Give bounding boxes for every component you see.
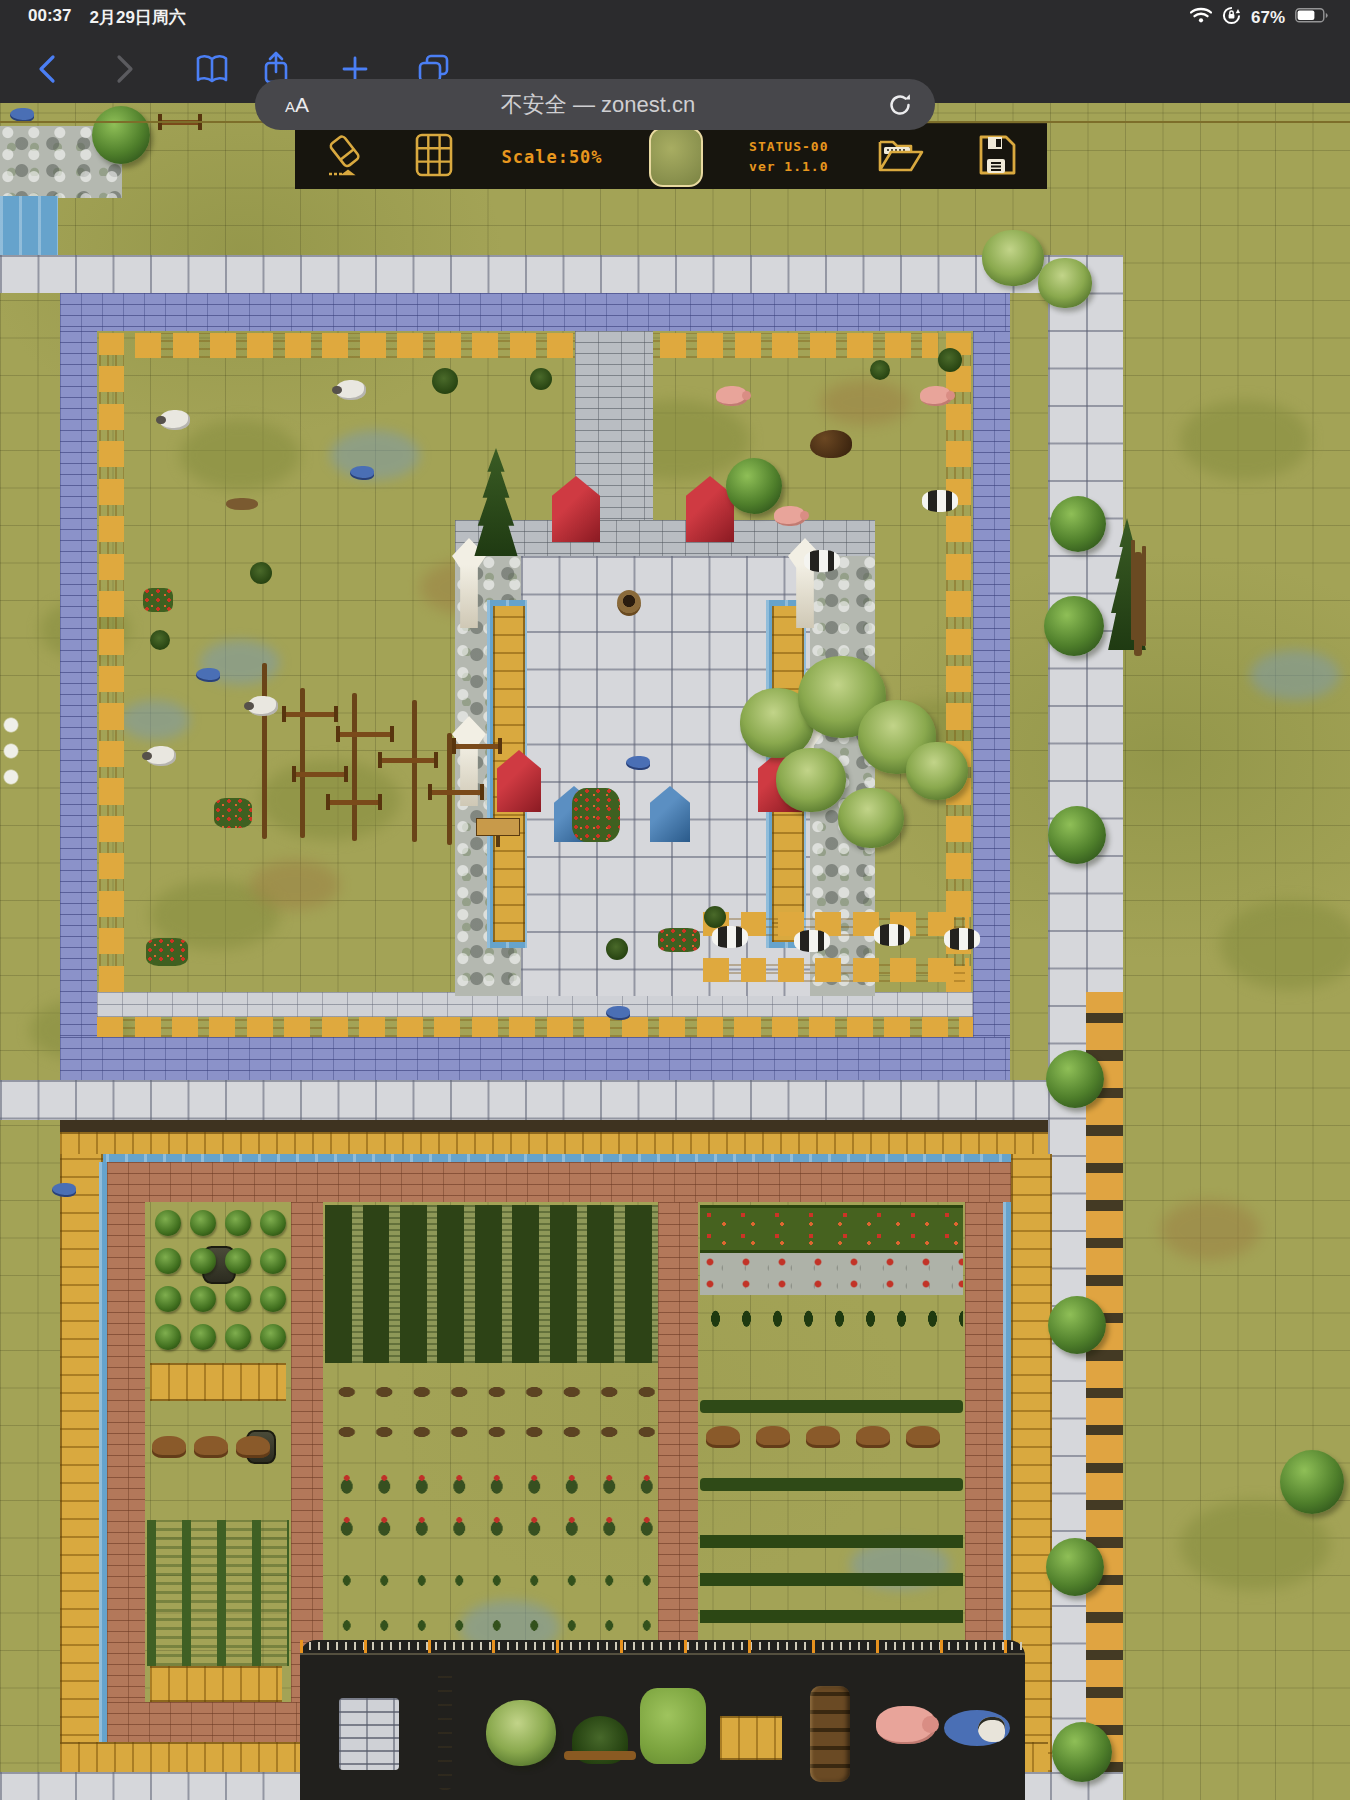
blue-bird	[196, 668, 220, 682]
shrub	[704, 906, 726, 928]
eraser-icon[interactable]	[323, 131, 367, 182]
training-pole	[412, 700, 417, 842]
orchard-tree	[190, 1324, 216, 1350]
well	[617, 590, 641, 616]
cow	[874, 924, 910, 946]
wall-top	[60, 293, 1010, 331]
hemp-field	[325, 1205, 658, 1363]
bison	[810, 430, 852, 458]
tree	[1044, 596, 1104, 656]
compost-rows	[328, 1372, 655, 1450]
dirt-patch	[250, 860, 340, 910]
battery-icon	[1295, 8, 1328, 28]
ferret	[226, 498, 258, 510]
grid-icon[interactable]	[413, 131, 455, 182]
jump-fence	[282, 712, 338, 717]
status-bar: 00:37 2月29日周六 67%	[0, 0, 1350, 35]
shrub	[606, 938, 628, 960]
bare-tree	[1134, 552, 1142, 656]
jump-fence	[326, 800, 382, 805]
clock: 00:37	[28, 6, 71, 29]
flowerbed	[572, 788, 620, 842]
hay-tables	[150, 1363, 286, 1401]
tree	[1052, 1722, 1112, 1782]
status-line2: ver 1.1.0	[749, 157, 828, 177]
wifi-icon	[1190, 7, 1212, 28]
status-line1: STATUS-00	[749, 137, 828, 157]
url-title: 不安全 — zonest.cn	[309, 90, 887, 120]
flowerbed	[658, 928, 700, 952]
puddle	[330, 430, 420, 480]
tree	[1048, 806, 1106, 864]
brick-wall	[107, 1162, 1011, 1202]
browser-toolbar: AA 不安全 — zonest.cn	[0, 35, 1350, 103]
date: 2月29日周六	[89, 6, 185, 29]
tile-palette[interactable]	[300, 1640, 1025, 1800]
reload-icon[interactable]	[887, 91, 913, 119]
wooden-sign	[476, 818, 520, 836]
hay-border	[946, 333, 971, 992]
willow-tree	[1038, 258, 1092, 308]
sheep	[160, 410, 190, 430]
rotation-lock-icon	[1222, 6, 1241, 30]
sheep	[336, 380, 366, 400]
map-canvas[interactable]	[0, 0, 1350, 1800]
blue-bird	[626, 756, 650, 770]
palette-willow-tree[interactable]	[486, 1700, 556, 1766]
blue-bird	[10, 108, 34, 122]
pig	[920, 386, 952, 406]
battery-percent: 67%	[1251, 8, 1285, 28]
orchard-tree	[225, 1248, 251, 1274]
grass-patch	[180, 420, 300, 490]
tree	[1046, 1050, 1104, 1108]
orchard-tree	[190, 1286, 216, 1312]
brick-divider	[291, 1202, 323, 1702]
palette-grass-tile[interactable]	[640, 1688, 706, 1764]
orchard-tree	[155, 1324, 181, 1350]
wall-left	[60, 331, 97, 1037]
deer	[236, 1436, 270, 1458]
plank-border	[60, 1154, 103, 1772]
hedge-line	[700, 1400, 963, 1413]
jump-fence	[378, 758, 438, 763]
sheep	[248, 696, 278, 716]
orchard-tree	[260, 1210, 286, 1236]
deer	[856, 1426, 890, 1448]
palette-plant[interactable]	[572, 1716, 628, 1764]
willow-tree	[906, 742, 968, 800]
mushroom-stack	[0, 712, 22, 790]
palette-log-stack[interactable]	[810, 1686, 850, 1782]
grass-patch	[1220, 900, 1350, 990]
shrub	[150, 630, 170, 650]
tree	[726, 458, 782, 514]
stone-path-row	[0, 1080, 1048, 1120]
cow	[944, 928, 980, 950]
deer	[706, 1426, 740, 1448]
dirt-patch	[820, 380, 910, 425]
bookmarks-icon[interactable]	[194, 53, 230, 85]
deer	[806, 1426, 840, 1448]
wall-right	[973, 331, 1010, 1037]
deer	[152, 1436, 186, 1458]
grass-patch	[1180, 400, 1310, 480]
hay-row	[97, 1017, 973, 1037]
soil-line	[60, 1120, 1048, 1132]
jump-fence	[452, 744, 502, 749]
shrub	[870, 360, 890, 380]
tree	[1050, 496, 1106, 552]
orchard-tree	[260, 1248, 286, 1274]
back-button[interactable]	[34, 52, 60, 86]
orchard-tree	[190, 1210, 216, 1236]
orchard-tree	[155, 1248, 181, 1274]
deer	[906, 1426, 940, 1448]
jump-fence	[336, 732, 394, 737]
flowerbed	[146, 938, 188, 966]
training-pole	[352, 693, 357, 841]
palette-goose-pond[interactable]	[944, 1710, 1010, 1746]
water	[0, 196, 58, 258]
open-folder-icon[interactable]	[875, 132, 927, 181]
moat	[99, 1162, 107, 1742]
flowerbed	[143, 588, 173, 612]
orange-border-col	[1086, 992, 1123, 1800]
willow-tree	[982, 230, 1044, 286]
willow-tree	[838, 788, 904, 848]
scale-label: Scale:50%	[501, 147, 602, 167]
flowerbed	[214, 798, 252, 828]
orchard-tree	[155, 1286, 181, 1312]
hay-border	[135, 333, 938, 358]
puddle	[1250, 650, 1340, 700]
sheep	[146, 746, 176, 766]
orchard-tree	[225, 1210, 251, 1236]
tree	[1048, 1296, 1106, 1354]
orchard-tree	[225, 1286, 251, 1312]
palette-ruler	[300, 1640, 1025, 1655]
training-pole	[262, 663, 267, 839]
cow	[794, 930, 830, 952]
feed-hay	[703, 958, 969, 982]
orchard-tree	[260, 1324, 286, 1350]
orchard-tree	[260, 1286, 286, 1312]
willow-tree	[776, 748, 846, 812]
orchard-tree	[155, 1210, 181, 1236]
palette-pole[interactable]	[438, 1670, 452, 1790]
status-readout: STATUS-00 ver 1.1.0	[749, 137, 828, 176]
blue-bird	[350, 466, 374, 480]
editor-toolbar: Scale:50% STATUS-00 ver 1.1.0	[295, 123, 1047, 189]
orchard-tree	[225, 1324, 251, 1350]
brick-divider	[658, 1202, 698, 1702]
tile-preview[interactable]	[649, 127, 703, 187]
shrub	[938, 348, 962, 372]
hedge-line	[700, 1478, 963, 1491]
blue-bird	[606, 1006, 630, 1020]
shrub	[432, 368, 458, 394]
flower-crop	[328, 1462, 655, 1546]
sapling-row	[700, 1300, 963, 1340]
stone-flowerbed	[700, 1253, 963, 1295]
wall-bottom	[60, 1037, 1010, 1080]
forward-button[interactable]	[112, 52, 138, 86]
brick-wall	[107, 1202, 145, 1742]
deer	[194, 1436, 228, 1458]
shrub	[250, 562, 272, 584]
hay-tables	[150, 1666, 282, 1702]
cow	[922, 490, 958, 512]
tree	[92, 106, 150, 164]
save-floppy-icon[interactable]	[973, 132, 1019, 181]
deer	[756, 1426, 790, 1448]
dirt-patch	[1160, 1200, 1260, 1260]
stone-path-row	[0, 255, 1123, 293]
shrub	[530, 368, 552, 390]
jump-fence	[428, 790, 484, 795]
palette-stone-brick[interactable]	[339, 1698, 399, 1770]
cow	[712, 926, 748, 948]
jump-fence	[292, 772, 348, 777]
moat	[68, 1154, 1040, 1162]
hay-border	[99, 333, 124, 992]
palette-pig[interactable]	[876, 1706, 936, 1744]
reader-aa-button[interactable]: AA	[285, 93, 309, 117]
pig	[716, 386, 748, 406]
orchard-tree	[190, 1248, 216, 1274]
puddle	[120, 700, 190, 740]
cow	[804, 550, 840, 572]
palette-planks[interactable]	[720, 1716, 782, 1760]
blue-bird	[52, 1183, 76, 1197]
address-bar[interactable]: AA 不安全 — zonest.cn	[255, 79, 935, 130]
flower-hedge	[700, 1205, 963, 1253]
tree	[1280, 1450, 1344, 1514]
tree	[1046, 1538, 1104, 1596]
pig	[774, 506, 806, 526]
vine-trellis	[147, 1520, 289, 1666]
training-pole	[300, 688, 305, 838]
